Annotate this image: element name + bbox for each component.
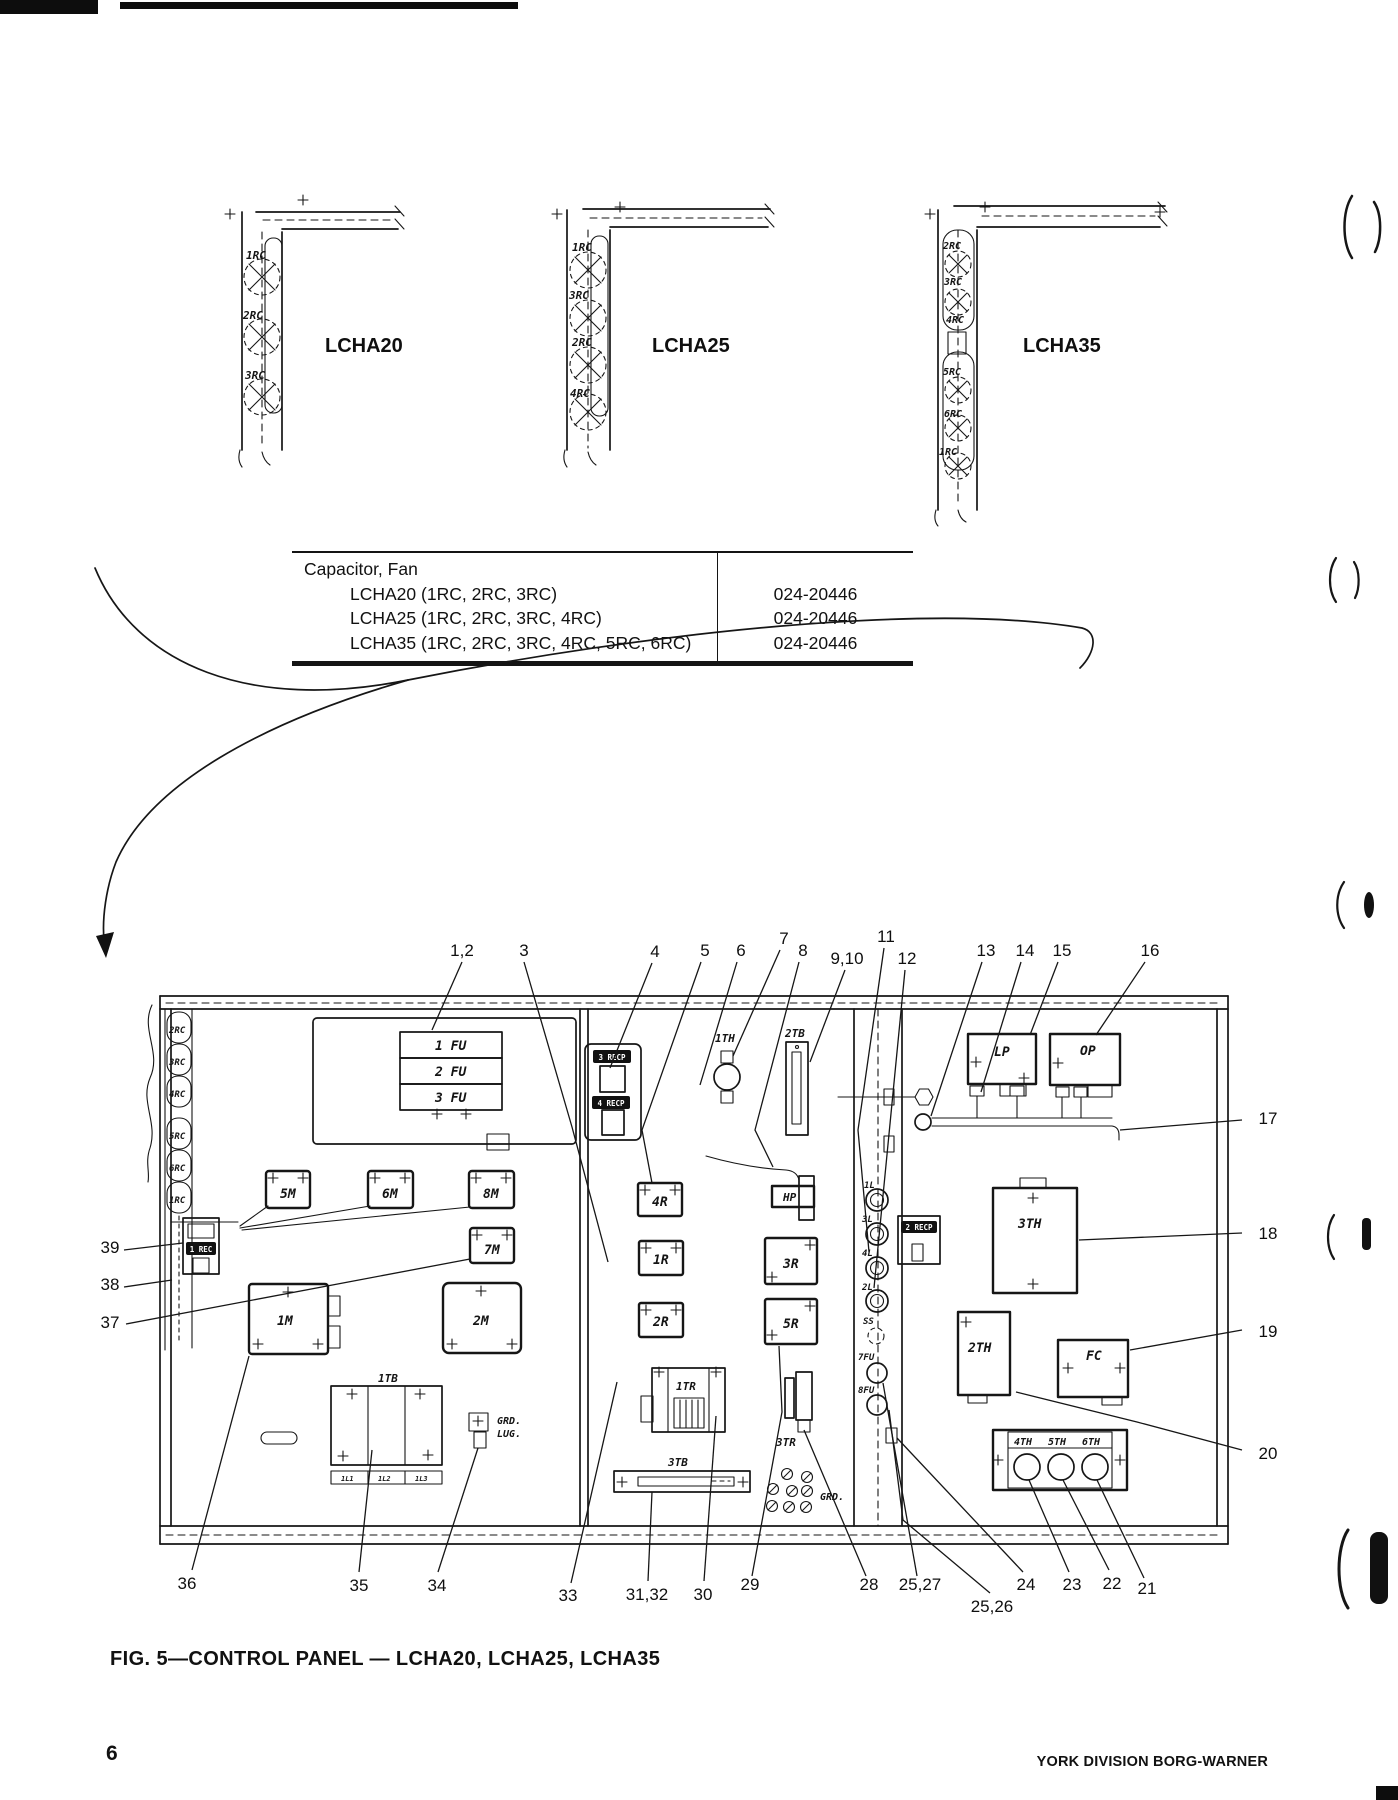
thermostat-1th: 1TH [714, 1032, 740, 1103]
screw-icon [767, 1501, 778, 1512]
callout-number: 20 [1259, 1444, 1278, 1463]
relay-label: 2R [652, 1315, 669, 1330]
tb1-label: 1TB [378, 1372, 398, 1385]
thermostats: 3TH 2TH FC [958, 1178, 1128, 1405]
callout-number: 28 [860, 1575, 879, 1594]
callout-number: 39 [101, 1238, 120, 1257]
tr1-label: 1TR [676, 1380, 696, 1393]
contactor-label: 7M [484, 1243, 501, 1258]
callout-number: 11 [877, 927, 895, 946]
callout-number: 9,10 [830, 949, 863, 968]
tr3-label: 3TR [775, 1436, 796, 1449]
fu7-label: 7FU [858, 1353, 875, 1363]
hex-fitting-icon [915, 1089, 933, 1105]
page-number: 6 [106, 1742, 118, 1766]
fan-label: 1RC [939, 447, 957, 458]
fan-label: 2RC [571, 336, 592, 349]
callout-number: 15 [1053, 941, 1072, 960]
screw-icon [801, 1502, 812, 1513]
ss-switch-icon [868, 1328, 884, 1344]
screw-icon [787, 1486, 798, 1497]
fu8-label: 8FU [858, 1386, 875, 1396]
callout-number: 16 [1141, 941, 1160, 960]
callout-number: 22 [1103, 1574, 1122, 1593]
callout-number: 36 [178, 1574, 197, 1593]
screw-icon [784, 1502, 795, 1513]
callout-number: 35 [350, 1576, 369, 1595]
callout-numbers: 1,2 3 4 5 6 7 8 9,10 11 12 13 14 15 16 3… [101, 927, 1278, 1616]
capacitor-label: 3RC [168, 1058, 186, 1068]
contactor-label: 5M [280, 1187, 297, 1202]
rec1-label: 1 REC [190, 1245, 213, 1254]
callout-number: 5 [700, 941, 709, 960]
callout-number: 12 [898, 949, 917, 968]
leader-curve [60, 550, 1160, 970]
callout-number: 3 [519, 941, 528, 960]
callout-number: 25,27 [899, 1575, 942, 1594]
callout-number: 1,2 [450, 941, 474, 960]
contactor-label: 8M [483, 1187, 500, 1202]
fan-label: 1RC [572, 241, 592, 254]
callout-number: 23 [1063, 1575, 1082, 1594]
callout-number: 13 [977, 941, 996, 960]
tb2-label: 2TB [784, 1027, 805, 1040]
footer-text: YORK DIVISION BORG-WARNER [1020, 1754, 1268, 1770]
callout-number: 6 [736, 941, 745, 960]
callout-number: 31,32 [626, 1585, 669, 1604]
capacitor-label: 5RC [169, 1132, 186, 1142]
callout-number: 30 [694, 1585, 713, 1604]
fan-label: 3RC [568, 289, 589, 302]
ground-screws: GRD. [767, 1469, 845, 1513]
callout-number: 38 [101, 1275, 120, 1294]
hp-label: HP [782, 1191, 797, 1204]
section-divider [580, 1009, 588, 1526]
manual-page: 1RC 2RC 3RC LCHA20 1RC 3RC 2RC 4RC [0, 0, 1398, 1800]
duct-diagram-lcha25: 1RC 3RC 2RC 4RC LCHA25 [552, 202, 774, 467]
th2-label: 2TH [967, 1341, 992, 1356]
capacitor-label: 1RC [169, 1196, 186, 1206]
callout-number: 4 [650, 942, 659, 961]
panel-enclosure [160, 996, 1228, 1544]
fan-label: 4RC [946, 315, 964, 326]
screw-icon [802, 1486, 813, 1497]
fan-label: 3RC [943, 277, 962, 288]
tb1-terminal: 1L1 [341, 1475, 354, 1483]
label-plate [261, 1432, 297, 1444]
capacitor-label: 2RC [168, 1026, 186, 1036]
relay-label: 3R [782, 1257, 799, 1272]
callout-number: 8 [798, 941, 807, 960]
line-terminals: 1L 3L 4L 2L SS 7FU 8FU [858, 1181, 897, 1443]
fuse-block: 1 FU 2 FU 3 FU [313, 1018, 576, 1150]
fuse-label: 3 FU [434, 1091, 467, 1106]
callout-number: 33 [559, 1586, 578, 1605]
contactor-label: 6M [382, 1187, 399, 1202]
fan-label: 1RC [246, 249, 266, 262]
model-label: LCHA35 [1023, 335, 1101, 357]
screw-icon [802, 1472, 813, 1483]
th5-label: 5TH [1048, 1437, 1067, 1448]
contactor-label: 1M [277, 1314, 294, 1329]
lp-label: LP [994, 1045, 1010, 1060]
pressure-switches: LP OP [838, 1034, 1120, 1152]
capacitor-strip: 2RC 3RC 4RC 5RC 6RC 1RC [147, 1005, 192, 1350]
terminal-block-3tb: 3TB [614, 1456, 750, 1492]
callout-number: 29 [741, 1575, 760, 1594]
callout-number: 25,26 [971, 1597, 1014, 1616]
receptacle-2recp: 2 RECP [898, 1216, 940, 1264]
callout-number: 24 [1017, 1575, 1036, 1594]
terminal-label: 4L [862, 1249, 873, 1259]
tb3-label: 3TB [667, 1456, 688, 1469]
fan-label: 5RC [943, 367, 961, 378]
th4-label: 4TH [1014, 1437, 1033, 1448]
callout-number: 18 [1259, 1224, 1278, 1243]
grd-lug-label: LUG. [497, 1429, 521, 1440]
control-panel-diagram: 2RC 3RC 4RC 5RC 6RC 1RC 1 FU 2 FU 3 FU 1… [80, 918, 1325, 1630]
recp2-label: 2 RECP [905, 1223, 933, 1232]
callout-number: 14 [1016, 941, 1035, 960]
callout-number: 34 [428, 1576, 447, 1595]
scan-artifact-bar [120, 2, 518, 9]
relay-label: 5R [783, 1317, 799, 1332]
fan-label: 2RC [242, 309, 263, 322]
scan-artifact-bar [1376, 1786, 1398, 1800]
grd-lug-label: GRD. [497, 1416, 521, 1427]
callout-number: 7 [779, 929, 788, 948]
th3-label: 3TH [1017, 1217, 1042, 1232]
figure-caption: FIG. 5—CONTROL PANEL — LCHA20, LCHA25, L… [110, 1648, 660, 1671]
fc-label: FC [1086, 1349, 1102, 1364]
capacitor-label: 4RC [169, 1090, 186, 1100]
callout-number: 21 [1138, 1579, 1157, 1598]
port-icon [915, 1114, 931, 1130]
duct-diagram-lcha35: 2RC 3RC 4RC 5RC 6RC 1RC LCHA35 [925, 202, 1167, 526]
tb1-terminal: 1L2 [378, 1475, 391, 1483]
callout-number: 37 [101, 1313, 120, 1332]
th6-label: 6TH [1082, 1437, 1101, 1448]
scan-artifacts [1322, 150, 1398, 1670]
fan-label: 2RC [942, 241, 961, 252]
duct-diagram-lcha20: 1RC 2RC 3RC LCHA20 [225, 195, 404, 467]
terminal-block-2tb: 2TB [784, 1027, 808, 1135]
contactor-label: 2M [472, 1314, 490, 1329]
relay-label: 1R [653, 1253, 669, 1268]
tb1-terminal: 1L3 [415, 1475, 428, 1483]
fan-label: 4RC [570, 387, 590, 400]
th3-box [993, 1188, 1077, 1293]
th1-label: 1TH [715, 1032, 735, 1045]
model-label: LCHA20 [325, 335, 403, 357]
fu se-label: 2 FU [434, 1065, 467, 1080]
thermostat-row: 4TH 5TH 6TH [993, 1430, 1127, 1490]
fuse-label: 1 FU [435, 1039, 467, 1054]
fan-location-diagrams: 1RC 2RC 3RC LCHA20 1RC 3RC 2RC 4RC [120, 140, 1200, 560]
callout-number: 17 [1259, 1109, 1278, 1128]
receptacle-panel: 3 RECP 4 RECP [585, 1044, 641, 1140]
scan-artifact-bar [0, 0, 98, 14]
callout-number: 19 [1259, 1322, 1278, 1341]
transformer-1tr: 1TR [641, 1368, 725, 1432]
fan-label: 3RC [244, 369, 265, 382]
op-switch-box [1050, 1034, 1120, 1085]
recp4-label: 4 RECP [597, 1099, 625, 1108]
hp-connector: HP [706, 1156, 814, 1220]
fan-label: 6RC [944, 409, 962, 420]
relay-label: 4R [652, 1195, 668, 1210]
ss-label: SS [863, 1317, 874, 1327]
contactors: 5M 6M 8M 7M 1M 2M [249, 1171, 521, 1354]
op-label: OP [1080, 1044, 1096, 1059]
ground-lug: GRD. LUG. [469, 1413, 521, 1448]
receptacle-1rec: 1 REC [171, 1206, 470, 1274]
model-label: LCHA25 [652, 335, 730, 357]
screw-icon [782, 1469, 793, 1480]
capacitor-label: 6RC [169, 1164, 186, 1174]
